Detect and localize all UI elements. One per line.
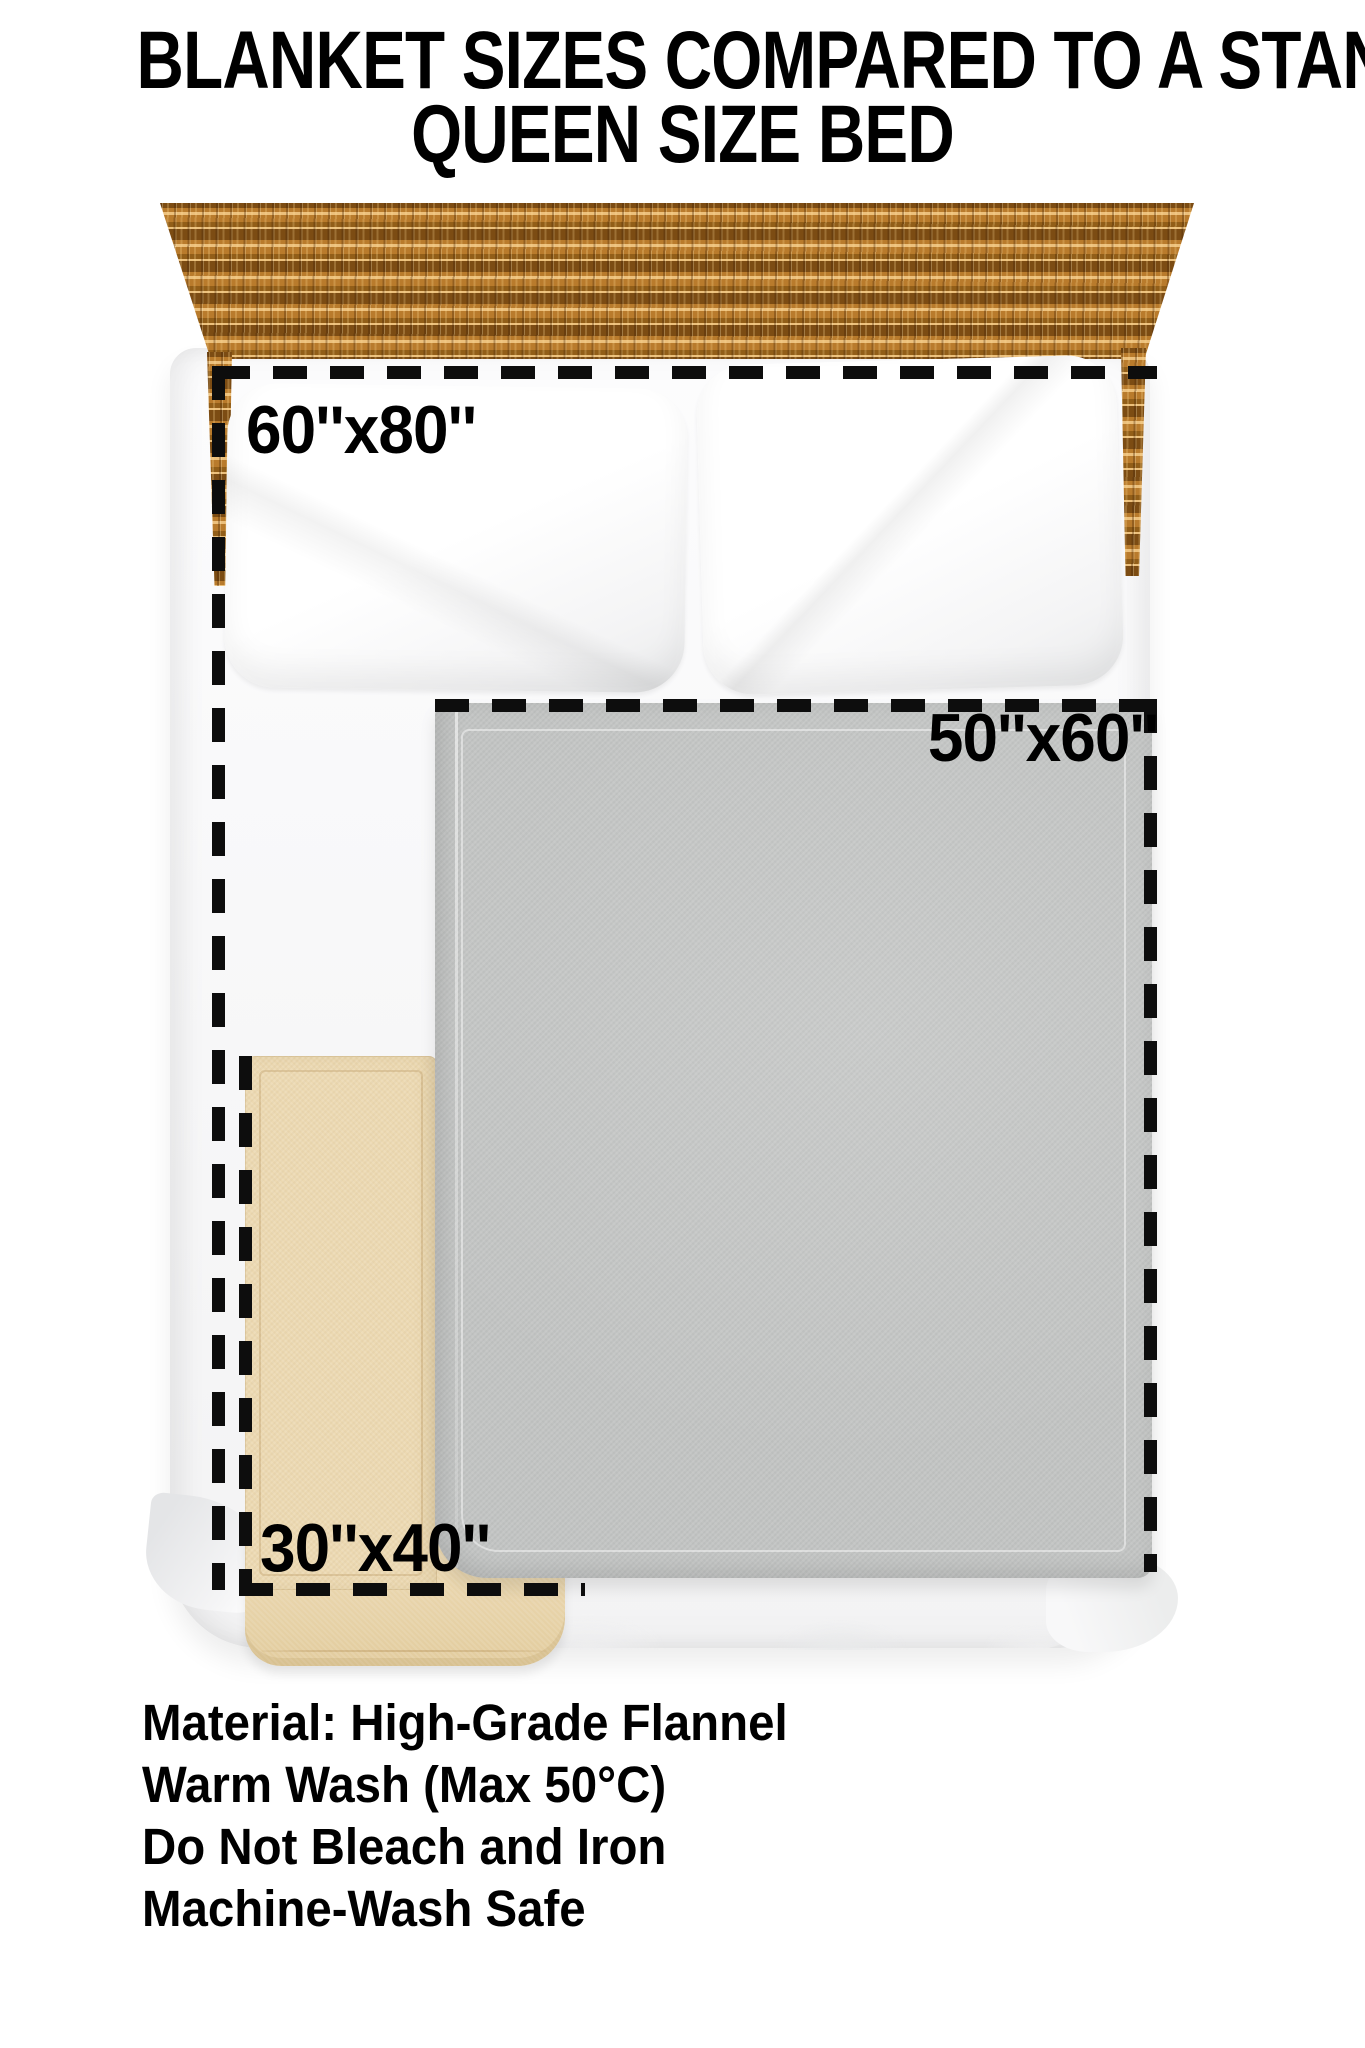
title-line-1: BLANKET SIZES COMPARED TO A STANDARD xyxy=(137,24,1229,98)
wood-headboard xyxy=(160,203,1194,359)
care-line-material: Material: High-Grade Flannel xyxy=(142,1692,788,1754)
care-line-bleach-iron: Do Not Bleach and Iron xyxy=(142,1816,788,1878)
queen-outline-top-dash xyxy=(216,366,1157,379)
small-blanket-size-label: 30''x40'' xyxy=(260,1518,490,1578)
pillow-right xyxy=(695,354,1124,696)
medium-blanket-size-label: 50''x60'' xyxy=(878,708,1158,768)
small-outline-left-dash xyxy=(239,1056,252,1596)
title-line-2: QUEEN SIZE BED xyxy=(137,98,1229,172)
medium-outline-right-dash xyxy=(1144,699,1157,1572)
queen-size-label: 60''x80'' xyxy=(246,400,476,460)
care-instructions: Material: High-Grade Flannel Warm Wash (… xyxy=(142,1692,788,1940)
queen-outline-left-dash xyxy=(212,366,225,1590)
page-title: BLANKET SIZES COMPARED TO A STANDARD QUE… xyxy=(137,24,1229,172)
medium-blanket-50x60 xyxy=(435,703,1152,1578)
infographic-canvas: BLANKET SIZES COMPARED TO A STANDARD QUE… xyxy=(0,0,1365,2048)
care-line-machine-wash: Machine-Wash Safe xyxy=(142,1878,788,1940)
care-line-wash-temp: Warm Wash (Max 50°C) xyxy=(142,1754,788,1816)
